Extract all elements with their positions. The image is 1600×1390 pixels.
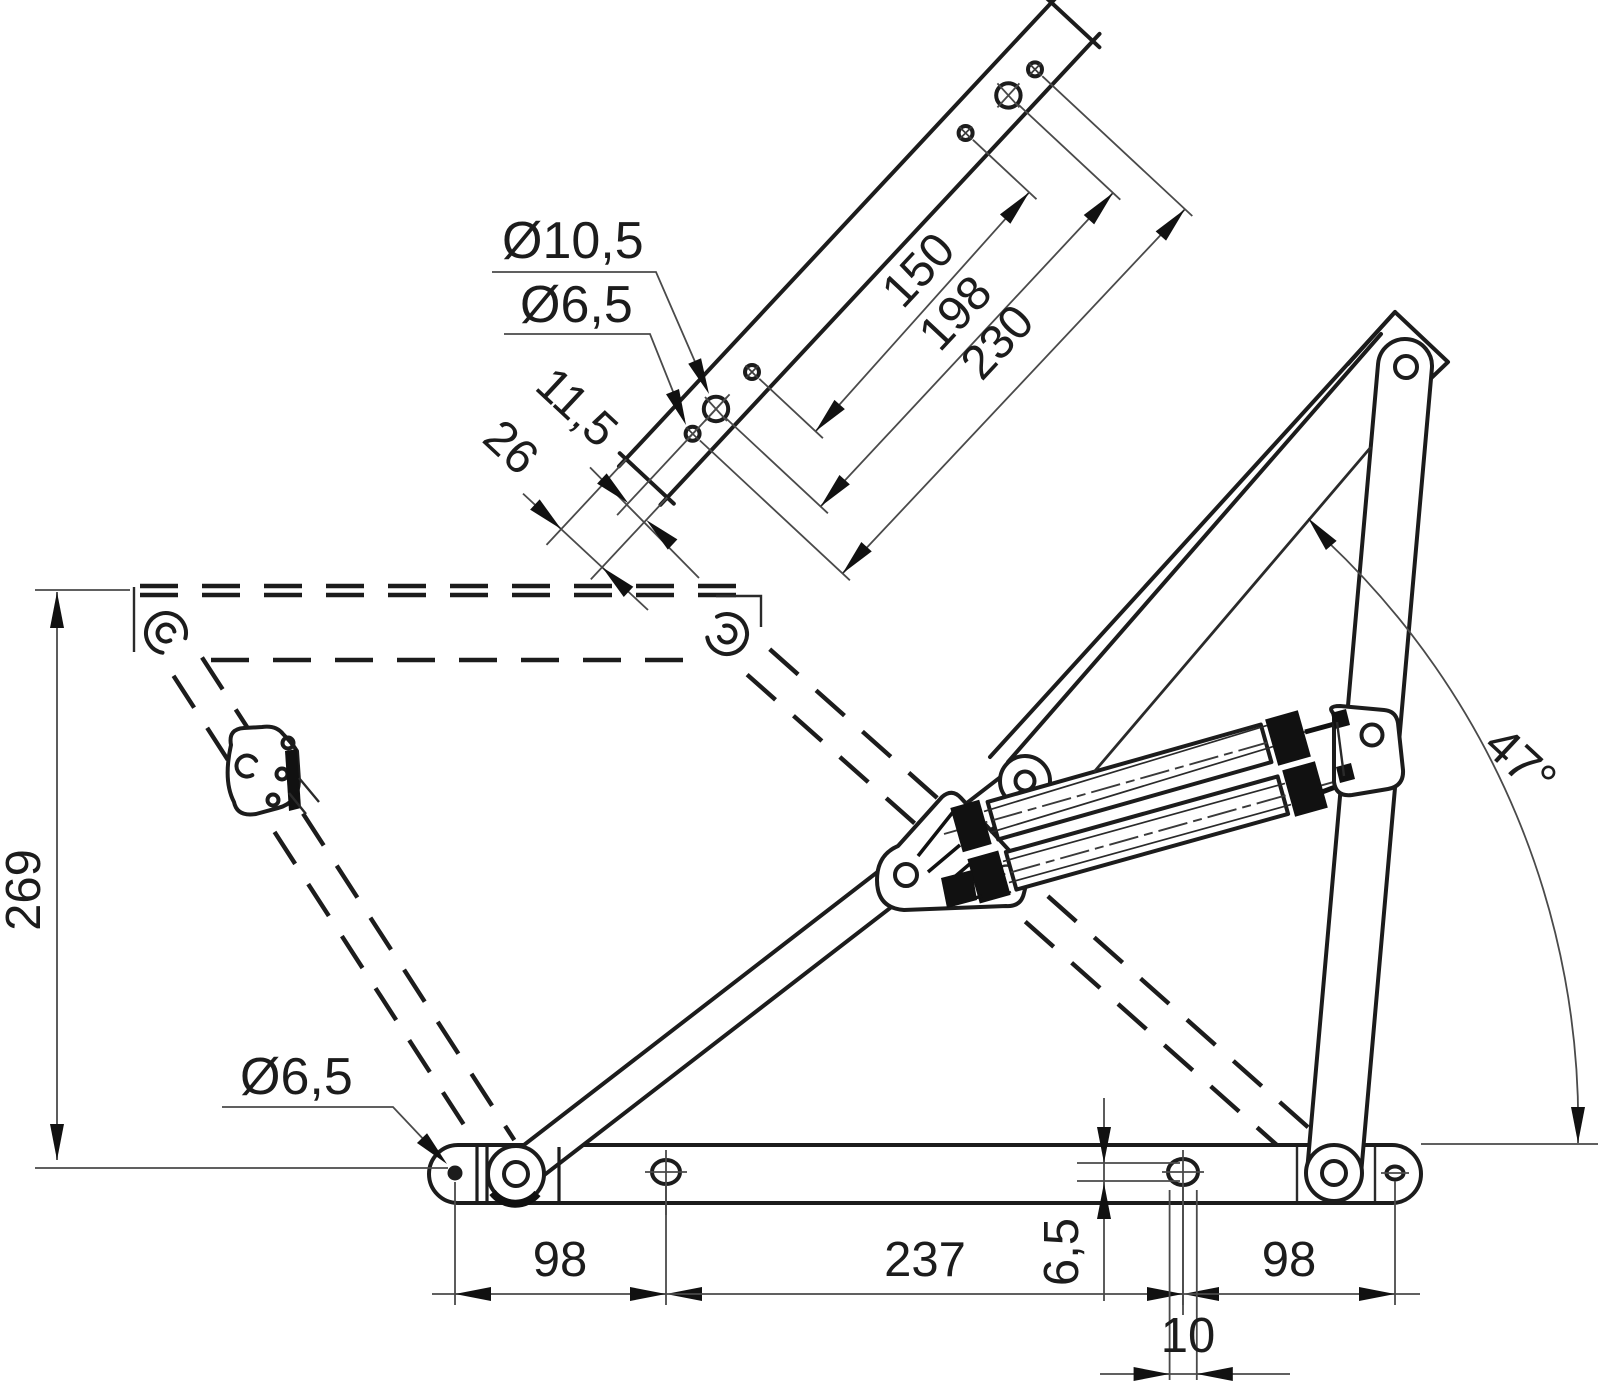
- svg-text:98: 98: [533, 1233, 588, 1287]
- svg-text:269: 269: [0, 849, 51, 931]
- svg-text:6,5: 6,5: [1035, 1218, 1089, 1286]
- svg-text:Ø6,5: Ø6,5: [240, 1048, 353, 1106]
- svg-text:237: 237: [884, 1233, 966, 1287]
- svg-text:10: 10: [1161, 1309, 1216, 1363]
- svg-text:98: 98: [1262, 1233, 1317, 1287]
- svg-text:Ø10,5: Ø10,5: [502, 212, 644, 270]
- svg-text:Ø6,5: Ø6,5: [520, 276, 633, 334]
